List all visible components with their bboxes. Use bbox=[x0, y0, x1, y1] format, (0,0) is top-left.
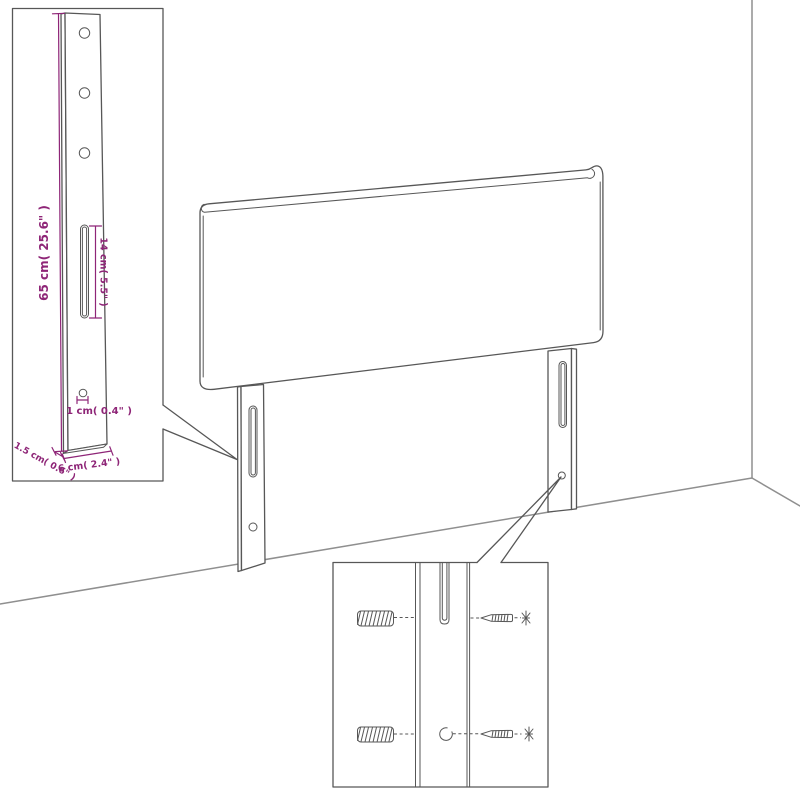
wall-plug-bottom bbox=[358, 727, 394, 742]
detail-inset-mounting bbox=[333, 477, 561, 787]
post-front-face bbox=[65, 13, 107, 451]
inset-leader-lines bbox=[477, 477, 561, 563]
dimension-label: 65 cm( 25.6" ) bbox=[37, 205, 51, 301]
headboard-right-leg bbox=[548, 349, 577, 513]
headboard-panel bbox=[200, 166, 603, 390]
right-leg-side-face bbox=[572, 349, 577, 510]
wall-plug-top bbox=[358, 611, 394, 626]
dimension-label: 14 cm( 5.5" ) bbox=[98, 237, 109, 306]
floor-line-right bbox=[752, 478, 800, 506]
product-diagram-page: 65 cm( 25.6" ) 14 cm( 5.5" ) 1 cm( 0.4" … bbox=[0, 0, 800, 800]
inset-leader-lines bbox=[163, 405, 237, 460]
headboard-outline bbox=[200, 166, 603, 390]
dimension-label: 1 cm( 0.4" ) bbox=[66, 406, 132, 417]
headboard-left-leg bbox=[238, 385, 266, 572]
headboard-assembly-diagram: 65 cm( 25.6" ) 14 cm( 5.5" ) 1 cm( 0.4" … bbox=[0, 0, 800, 800]
